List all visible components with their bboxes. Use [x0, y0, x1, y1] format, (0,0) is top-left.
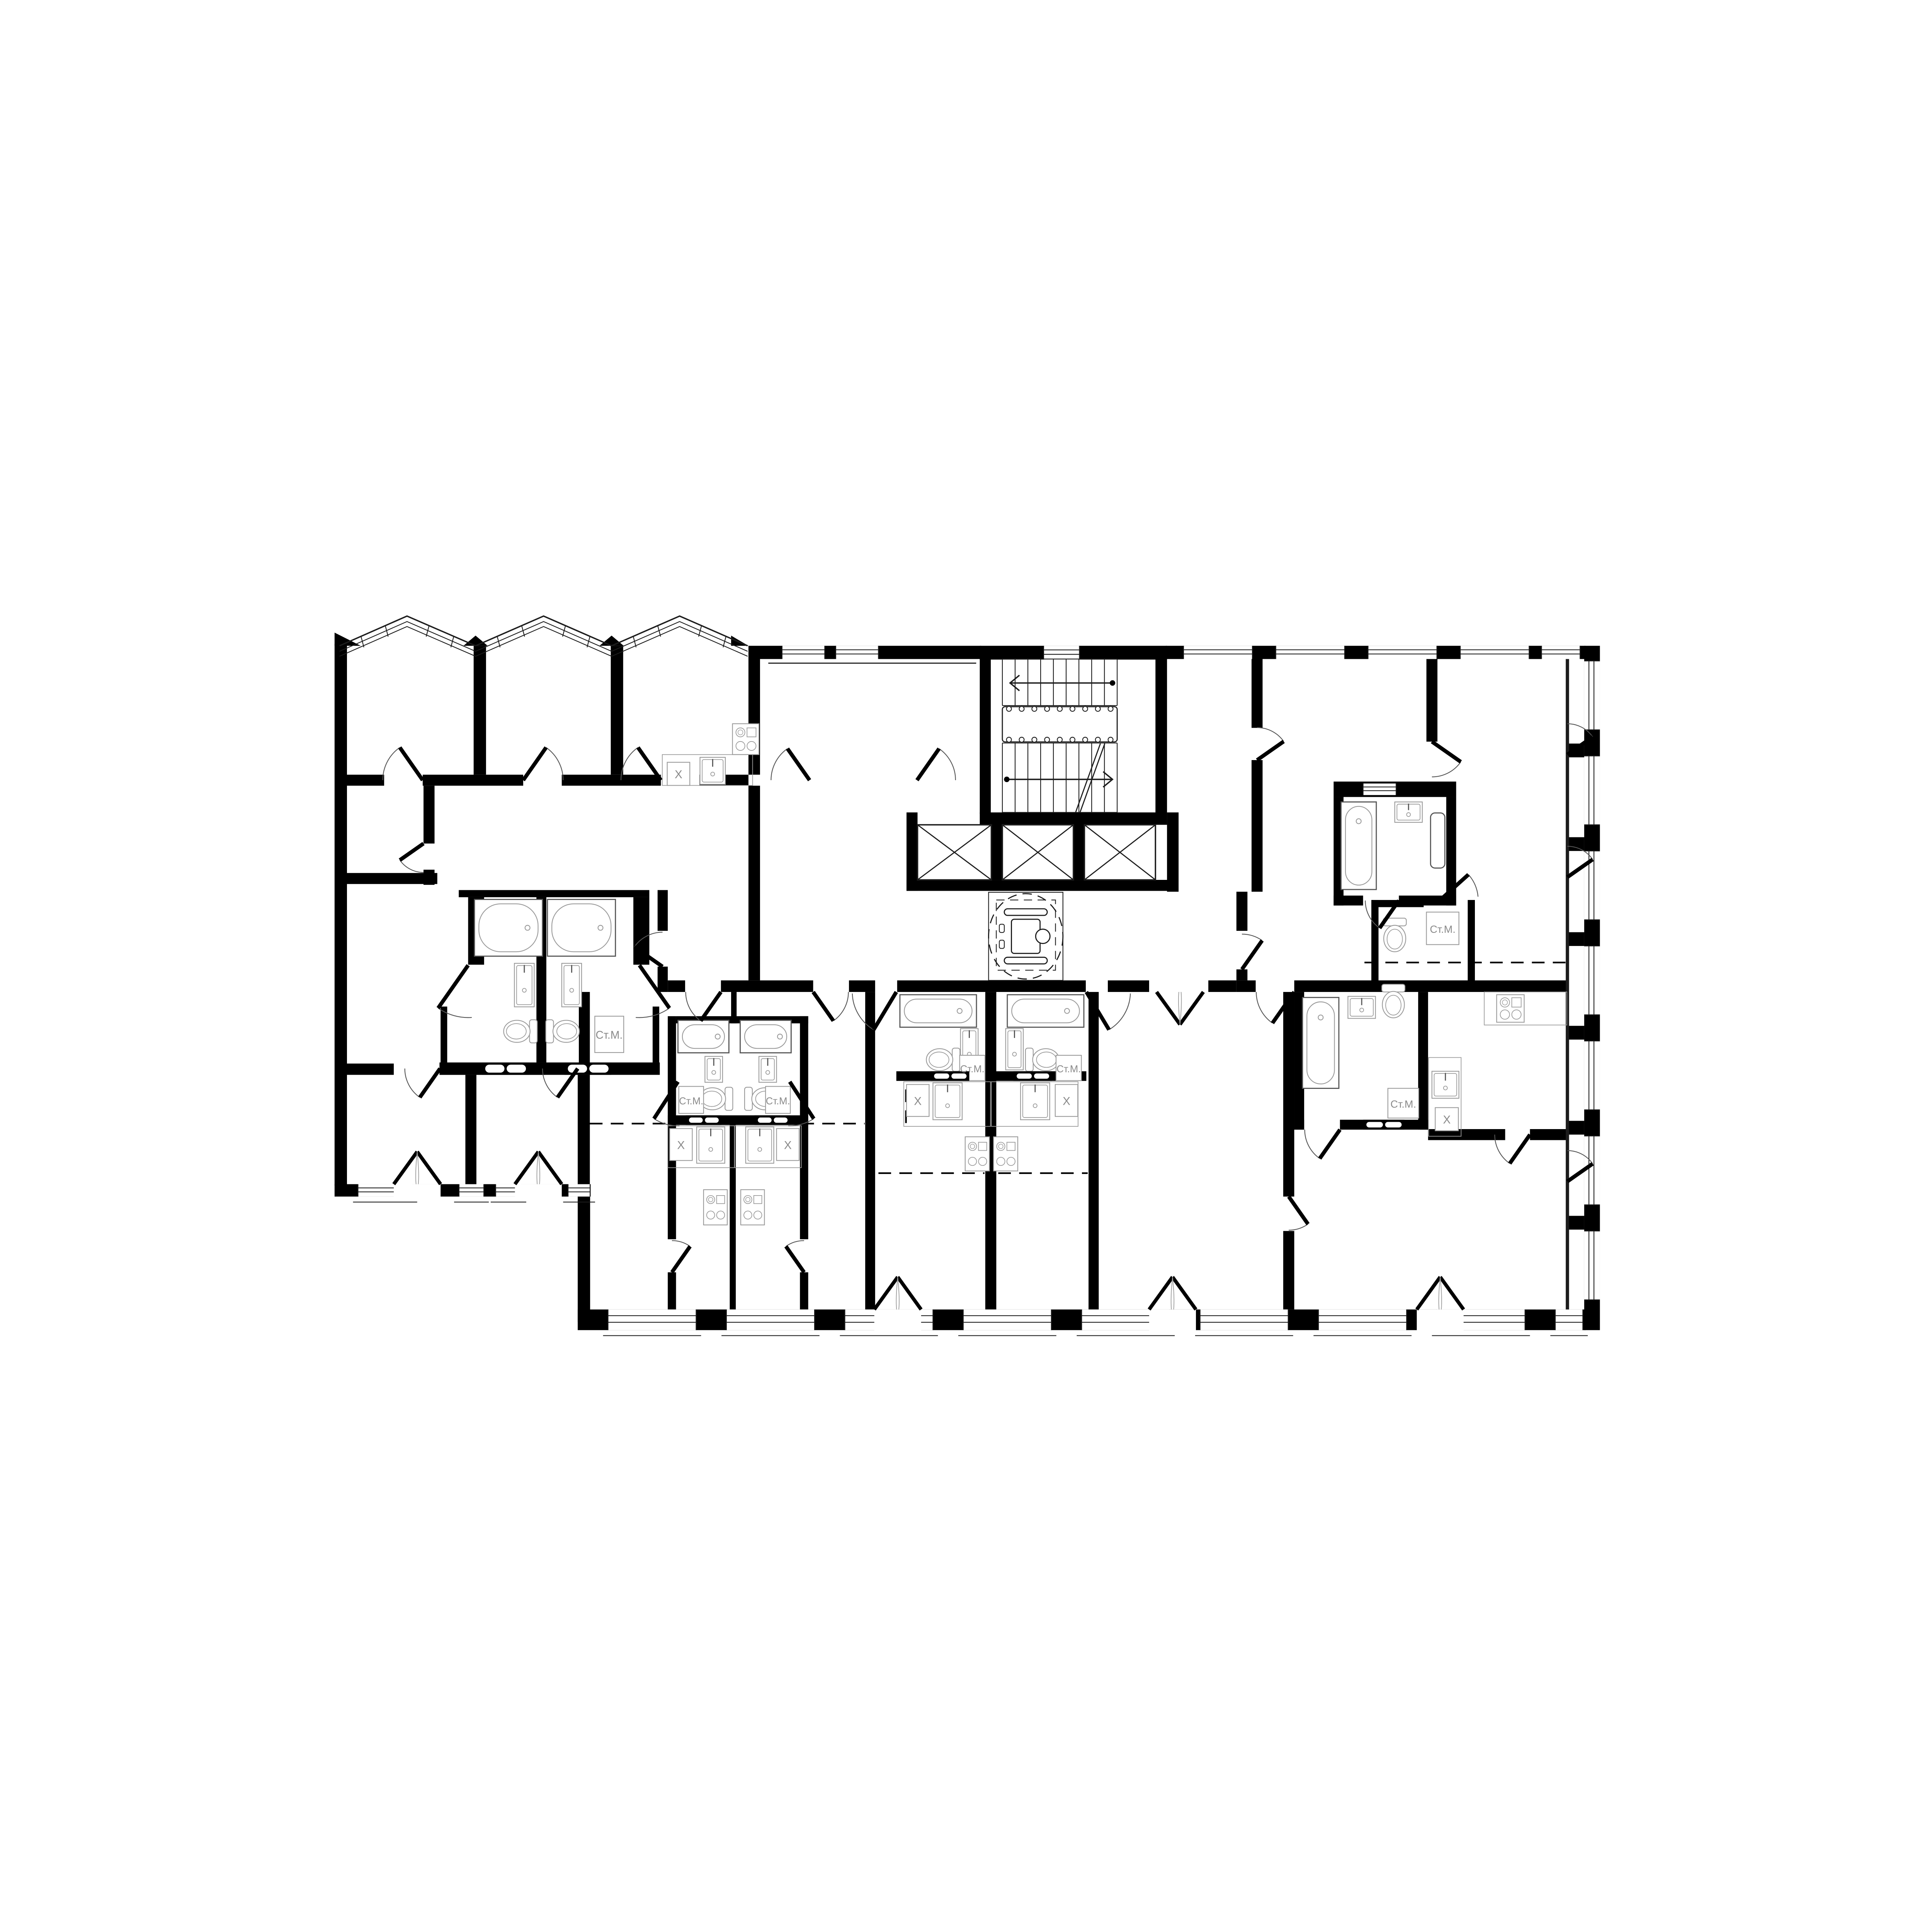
- wall: [1567, 1216, 1584, 1230]
- stove: [741, 1190, 764, 1225]
- window: [1363, 784, 1396, 795]
- double-door-leaf: [1180, 992, 1204, 1024]
- door-swing-arc: [1256, 992, 1272, 1023]
- wall: [1418, 992, 1428, 1129]
- door-leaf: [400, 747, 423, 780]
- door-leaf: [672, 1246, 690, 1272]
- bay-window-glazing: [612, 626, 748, 656]
- wall: [658, 890, 668, 930]
- door-swing-arc: [405, 1068, 420, 1097]
- floor-plan-page: Ст.М.Ст.М.Ст.М.Ст.М.Ст.М.Ст.М.Ст.М.ХХХХХ…: [0, 0, 1932, 1917]
- door-swing-arc: [939, 748, 956, 780]
- wall: [1468, 900, 1475, 981]
- toilet-tank: [725, 1087, 733, 1111]
- fixture-label: Ст.М.: [679, 1096, 703, 1107]
- bathtub: [740, 1020, 791, 1053]
- bay-window-glazing: [612, 616, 748, 646]
- toilet-tank: [529, 1020, 537, 1043]
- wall: [658, 967, 668, 992]
- door-swing-arc: [546, 747, 563, 780]
- double-door-opening: [874, 1310, 921, 1331]
- wall: [1567, 932, 1584, 946]
- window: [1318, 1310, 1406, 1330]
- door-swing-arc: [672, 1241, 690, 1247]
- bay-windows: [340, 616, 748, 656]
- chase-slot: [934, 1073, 949, 1079]
- door-leaf: [523, 747, 546, 780]
- wall: [335, 644, 347, 1186]
- arrow-origin-dot: [1004, 777, 1009, 782]
- wall: [748, 786, 760, 980]
- door-leaf: [420, 1068, 440, 1097]
- wheelchair-symbol: [988, 892, 1063, 980]
- window: [1584, 661, 1600, 730]
- baluster: [1019, 737, 1024, 742]
- baluster: [1108, 706, 1113, 711]
- wall: [1236, 970, 1248, 981]
- window: [1584, 1231, 1600, 1300]
- window: [1541, 646, 1580, 659]
- door-swing-arc: [1257, 728, 1284, 742]
- wall: [731, 992, 736, 1023]
- stair-landing: [1002, 707, 1117, 742]
- door-leaf: [786, 1246, 804, 1272]
- toilet: [1382, 984, 1405, 1018]
- wall: [992, 825, 1003, 880]
- wall: [1252, 659, 1263, 728]
- window: [1584, 1041, 1600, 1110]
- baluster: [1044, 706, 1049, 711]
- toilet: [699, 1087, 733, 1111]
- door-swing-arc: [771, 748, 787, 780]
- door-swing-arc: [400, 860, 423, 873]
- bathtub: [548, 900, 616, 956]
- double-door-opening: [515, 1184, 562, 1197]
- wall: [440, 1007, 447, 1063]
- double-door-arc: [1440, 1277, 1442, 1310]
- door-leaf: [400, 844, 423, 860]
- window: [1044, 646, 1080, 660]
- window: [1368, 646, 1437, 659]
- window: [836, 646, 878, 659]
- door-leaf: [1289, 1197, 1308, 1224]
- double-door-leaf: [1149, 1277, 1173, 1310]
- chase-slot: [1017, 1073, 1032, 1079]
- wall: [1567, 837, 1584, 851]
- wall: [1371, 900, 1379, 981]
- bathtub: [678, 1020, 729, 1053]
- fixture-label: Ст.М.: [595, 1029, 622, 1041]
- chase-slot: [705, 1118, 719, 1123]
- wall: [423, 775, 523, 786]
- double-door-leaf: [1156, 992, 1180, 1024]
- double-door-leaf: [394, 1152, 417, 1184]
- door-leaf: [1242, 941, 1262, 970]
- double-door-arc: [538, 1152, 540, 1184]
- bay-window-glazing: [340, 626, 476, 656]
- baluster: [1032, 737, 1037, 742]
- wall: [347, 1063, 394, 1075]
- double-door-arc: [537, 1152, 538, 1184]
- stair-break-slash: [1080, 743, 1105, 812]
- window: [1584, 1136, 1600, 1205]
- double-door-opening: [1156, 980, 1203, 992]
- door-swing-arc: [1109, 993, 1130, 1030]
- wall: [1294, 1120, 1304, 1130]
- door-leaf: [917, 748, 939, 780]
- stove: [1497, 995, 1524, 1022]
- double-door-leaf: [874, 1277, 898, 1310]
- fixture-label: Х: [1443, 1114, 1451, 1126]
- bay-window-glazing: [476, 616, 612, 646]
- stairwell: [1002, 659, 1117, 812]
- chase-slot: [1385, 1122, 1402, 1127]
- wall: [578, 1075, 590, 1195]
- double-door-leaf: [1172, 1277, 1196, 1310]
- fixture-label: Х: [914, 1095, 922, 1107]
- double-door-arc: [896, 1277, 898, 1310]
- wall: [1283, 992, 1294, 1197]
- door-leaf: [1432, 742, 1461, 762]
- wall: [1427, 659, 1438, 742]
- baluster: [1083, 706, 1088, 711]
- double-door-leaf: [1440, 1277, 1464, 1310]
- wall: [980, 659, 991, 814]
- fixture-label: Х: [675, 768, 682, 781]
- baluster: [1095, 706, 1100, 711]
- fixture-label: Х: [784, 1139, 792, 1152]
- baluster: [1007, 737, 1012, 742]
- floor-plan-canvas: Ст.М.Ст.М.Ст.М.Ст.М.Ст.М.Ст.М.Ст.М.ХХХХХ…: [0, 0, 1932, 1917]
- wall: [440, 1063, 476, 1075]
- door-leaf: [813, 992, 833, 1021]
- wall: [1567, 1121, 1584, 1135]
- window: [1276, 646, 1345, 659]
- double-door-arc: [1171, 1277, 1173, 1310]
- toilet-tank: [952, 1048, 960, 1071]
- wall: [459, 890, 649, 897]
- wall: [578, 1195, 590, 1322]
- wall: [668, 980, 685, 992]
- window: [459, 1184, 484, 1197]
- double-door-opening: [1417, 1310, 1464, 1331]
- baluster: [1019, 706, 1024, 711]
- door-swing-arc: [636, 1008, 669, 1017]
- door-leaf: [1257, 742, 1284, 760]
- wall: [1252, 760, 1263, 892]
- toilet: [546, 1020, 579, 1043]
- chase-slot: [689, 1118, 703, 1123]
- wall: [1208, 980, 1236, 992]
- double-door-arc: [417, 1152, 419, 1184]
- door-swing-arc: [383, 747, 400, 780]
- bathtub: [900, 995, 976, 1027]
- door-leaf: [1320, 1129, 1340, 1158]
- wall: [1567, 1026, 1584, 1040]
- baluster: [1095, 737, 1100, 742]
- window: [1584, 756, 1600, 825]
- chase-slot: [589, 1065, 609, 1073]
- window: [608, 1310, 696, 1330]
- chase-slot: [507, 1065, 526, 1073]
- baluster: [1057, 706, 1062, 711]
- toilet: [1383, 918, 1406, 952]
- door-swing-arc: [1305, 1129, 1320, 1158]
- wall: [423, 786, 435, 844]
- door-swing-arc: [1242, 934, 1262, 940]
- toilet-tank: [1382, 984, 1405, 992]
- baluster: [1032, 706, 1037, 711]
- door-leaf: [1510, 1135, 1530, 1163]
- window: [1584, 946, 1600, 1015]
- chase-slot: [1034, 1073, 1049, 1079]
- door-swing-arc: [786, 1241, 804, 1247]
- bathtub: [1007, 995, 1084, 1027]
- fixture-label: Ст.М.: [1390, 1098, 1416, 1110]
- baluster: [1007, 706, 1012, 711]
- wall: [1294, 980, 1567, 992]
- toilet-tank: [745, 1087, 752, 1111]
- shower-column: [1430, 813, 1445, 868]
- wall-corner: [463, 636, 488, 646]
- double-door-leaf: [417, 1152, 441, 1184]
- wall: [474, 646, 486, 775]
- double-door-leaf: [1417, 1277, 1440, 1310]
- window: [963, 1310, 1051, 1330]
- toilet-tank: [546, 1020, 553, 1043]
- door-swing-arc: [1432, 762, 1461, 777]
- wall-corner: [599, 636, 624, 646]
- fixture-label: Ст.М.: [960, 1064, 985, 1075]
- wall: [1236, 892, 1248, 931]
- wall: [668, 1016, 676, 1239]
- double-door-arc: [1172, 1277, 1174, 1310]
- fixture-label: Ст.М.: [1056, 1064, 1081, 1075]
- wall: [849, 980, 875, 992]
- double-door-arc: [416, 1152, 417, 1184]
- door-leaf: [787, 748, 810, 780]
- chase-slot: [758, 1118, 772, 1123]
- wall: [865, 992, 875, 1310]
- window: [1184, 646, 1252, 659]
- wall: [1333, 896, 1363, 906]
- wall: [1530, 1129, 1567, 1140]
- window: [782, 646, 825, 659]
- chase-slot: [1366, 1122, 1383, 1127]
- door-swing-arc: [1289, 1224, 1308, 1230]
- bay-window-glazing: [340, 616, 476, 646]
- fixture-label: Х: [677, 1139, 685, 1152]
- wall: [721, 980, 813, 992]
- toilet: [1026, 1048, 1059, 1071]
- wheelchair-user-head: [1036, 929, 1050, 944]
- wall: [611, 646, 623, 775]
- door-leaf: [874, 992, 896, 1030]
- wall: [897, 980, 1086, 992]
- double-door-arc: [898, 1277, 899, 1310]
- wall: [465, 1075, 476, 1185]
- double-door-opening: [1149, 1310, 1196, 1331]
- fixture-label: Ст.М.: [766, 1096, 790, 1107]
- bay-window-glazing: [476, 626, 612, 656]
- stove: [733, 724, 759, 755]
- elevator-shafts: [918, 825, 1156, 880]
- wall: [347, 873, 437, 884]
- window: [1555, 1310, 1583, 1330]
- window: [568, 1184, 590, 1197]
- double-door-arc: [1179, 992, 1180, 1024]
- double-door-arc: [1180, 992, 1182, 1024]
- stove: [704, 1190, 727, 1225]
- wall: [347, 775, 384, 786]
- window: [726, 1310, 815, 1330]
- wall: [800, 1272, 808, 1310]
- wall: [562, 775, 661, 786]
- baluster: [1108, 737, 1113, 742]
- toilet: [503, 1020, 537, 1043]
- baluster: [1044, 737, 1049, 742]
- chase-slot: [774, 1118, 788, 1123]
- baluster: [1057, 737, 1062, 742]
- baluster: [1083, 737, 1088, 742]
- wall-corner: [731, 636, 748, 646]
- window: [1200, 1310, 1288, 1330]
- wall: [1155, 659, 1167, 825]
- wall: [980, 812, 1167, 825]
- wall: [1073, 825, 1085, 880]
- double-door-leaf: [515, 1152, 539, 1184]
- double-door-leaf: [898, 1277, 921, 1310]
- toilet: [926, 1048, 960, 1071]
- chase-slot: [485, 1065, 505, 1073]
- wall: [668, 1272, 676, 1310]
- window: [1460, 646, 1529, 659]
- wall: [906, 812, 918, 891]
- bathtub: [474, 900, 543, 956]
- wall: [1088, 992, 1099, 1310]
- door-leaf: [438, 965, 468, 1008]
- double-door-arc: [1439, 1277, 1440, 1310]
- door-swing-arc: [1468, 874, 1478, 896]
- toilet-tank: [1026, 1048, 1033, 1071]
- double-door-opening: [394, 1184, 440, 1197]
- wall: [748, 659, 760, 774]
- wall: [1236, 980, 1256, 992]
- double-door-leaf: [538, 1152, 562, 1184]
- baluster: [1070, 706, 1075, 711]
- wall: [1108, 980, 1149, 992]
- fixture-label: Х: [1063, 1095, 1070, 1107]
- fixture-label: Ст.М.: [1430, 923, 1456, 935]
- wall: [1167, 812, 1179, 891]
- baluster: [1070, 737, 1075, 742]
- arrow-origin-dot: [1110, 680, 1115, 685]
- wall: [1283, 1231, 1294, 1310]
- door-swing-arc: [833, 992, 849, 1021]
